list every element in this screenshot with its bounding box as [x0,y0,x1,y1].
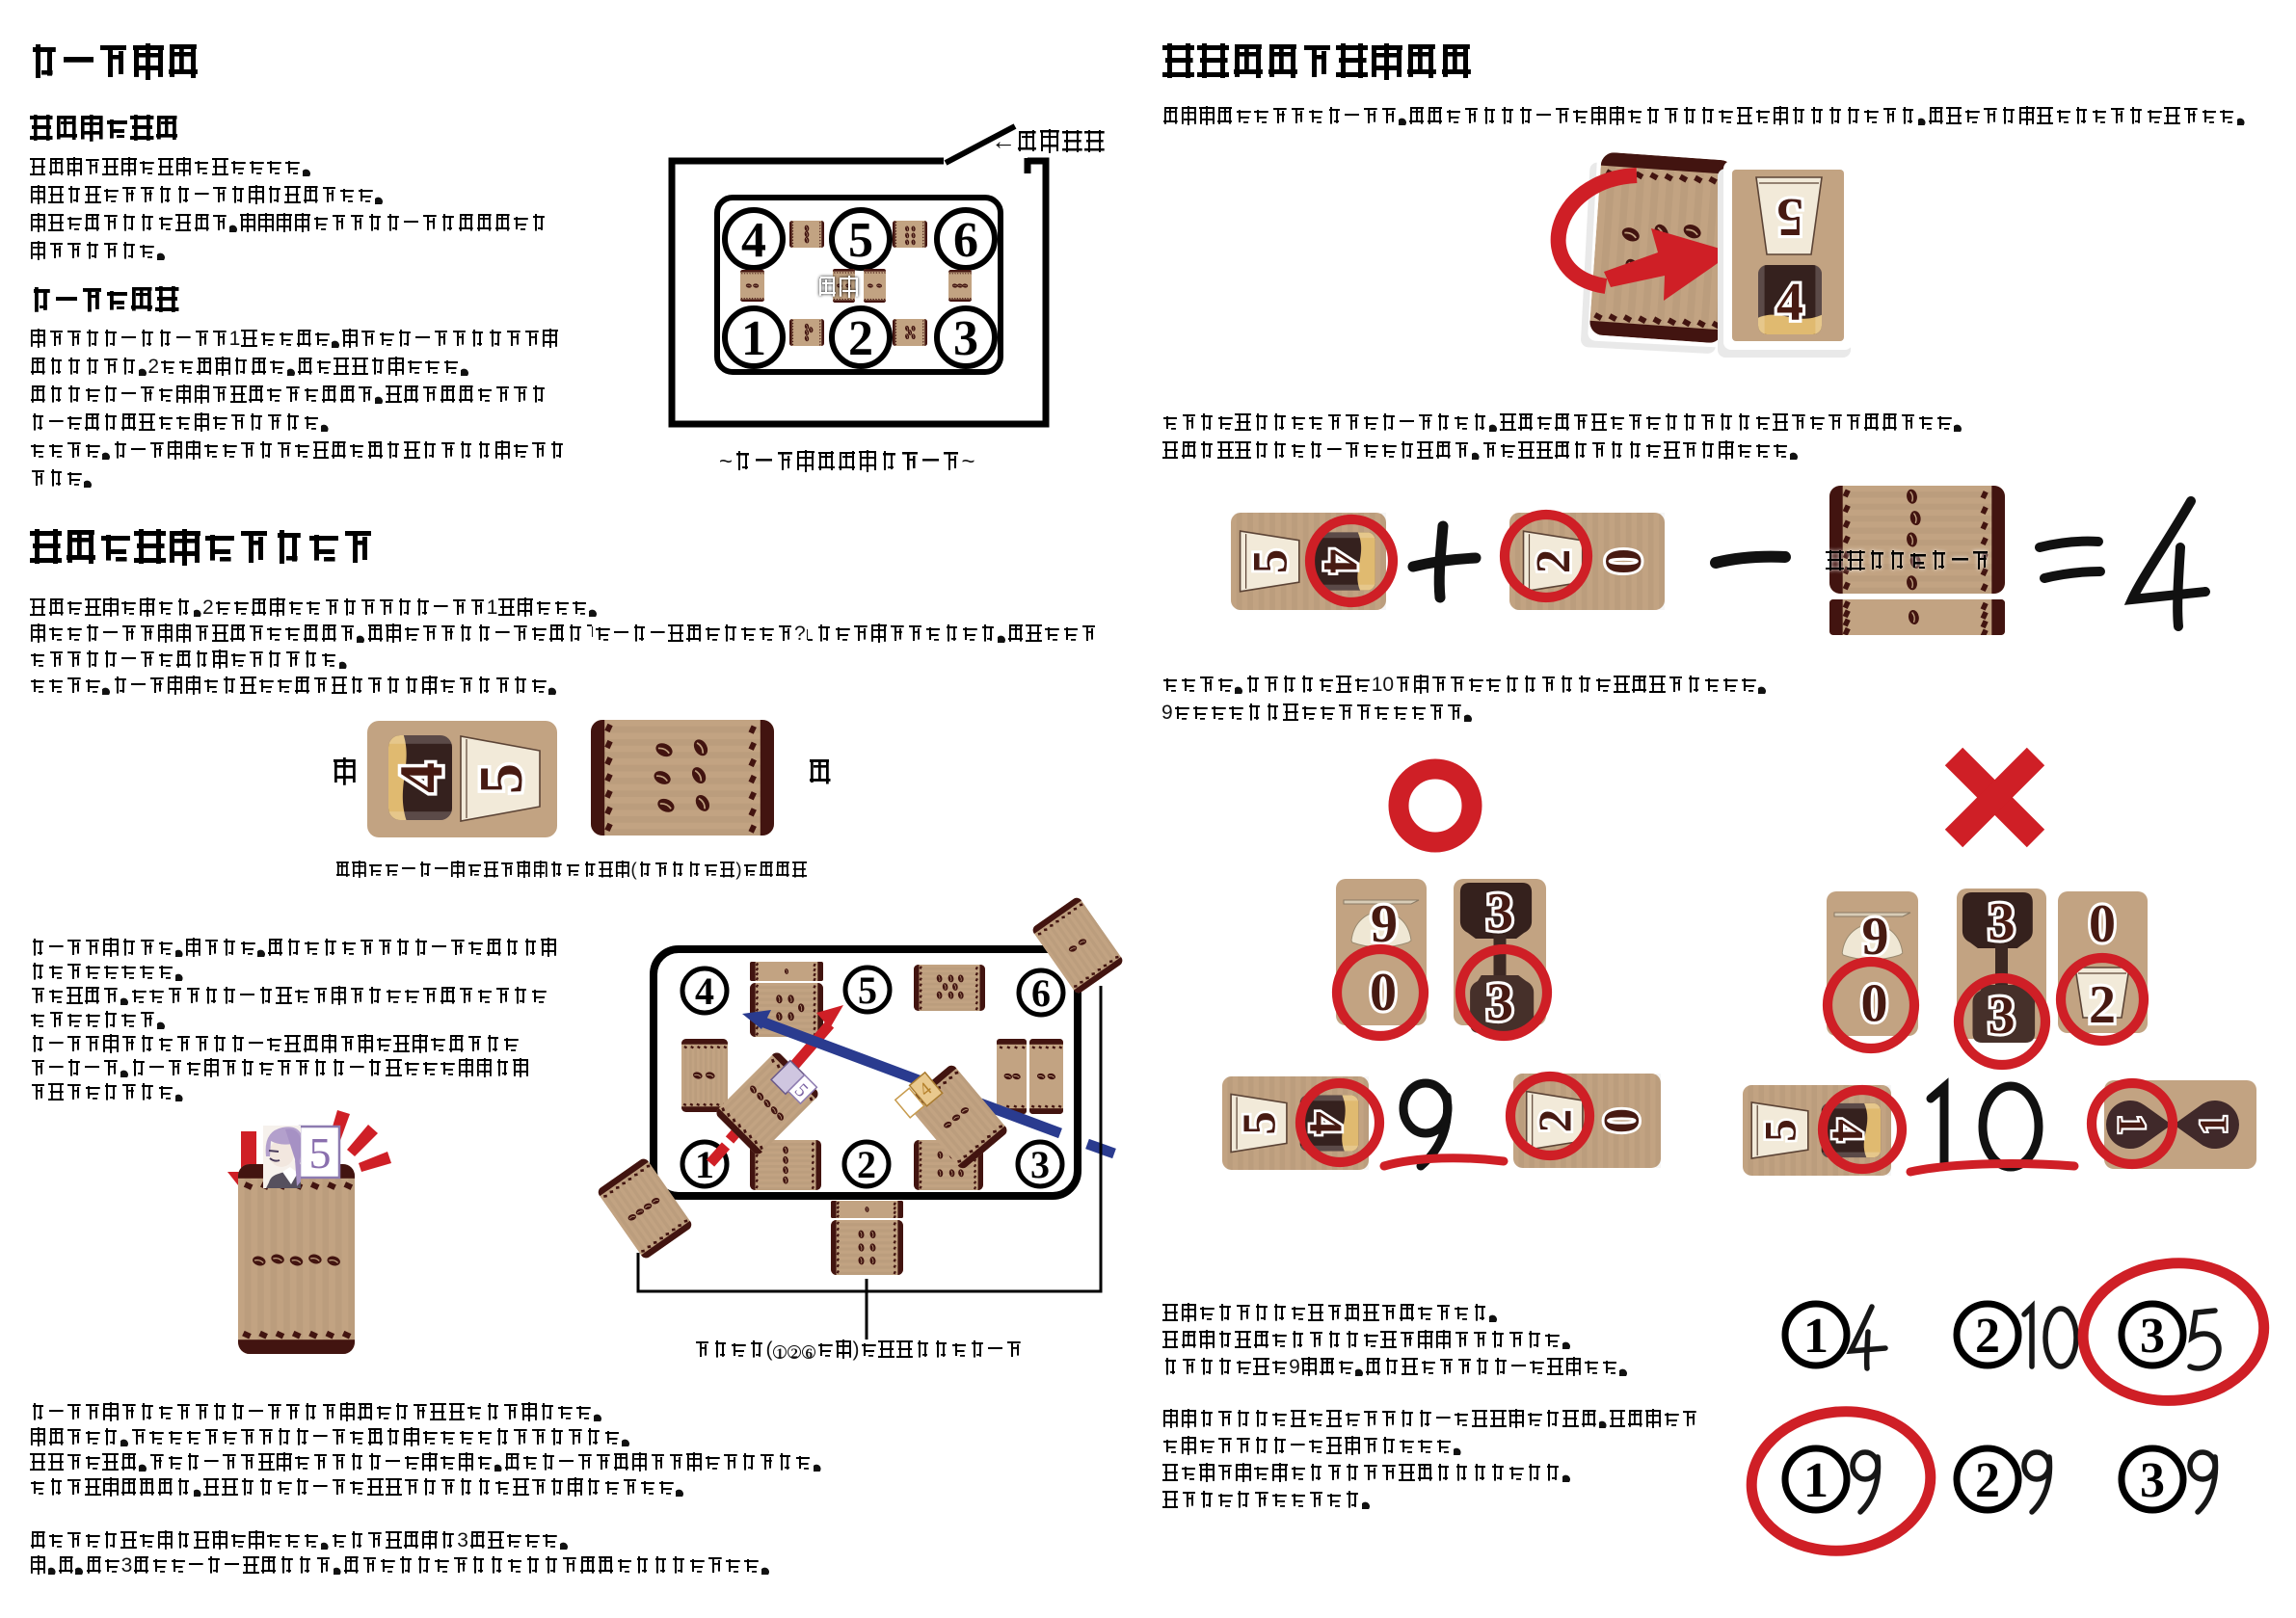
svg-text:3: 3 [953,311,978,366]
svg-text:3: 3 [1486,883,1513,942]
svg-text:1: 1 [695,1143,714,1186]
svg-text:0: 0 [1595,548,1654,574]
svg-text:3: 3 [1989,892,2016,952]
svg-text:5: 5 [858,968,877,1012]
svg-text:2: 2 [1526,549,1580,573]
svg-text:2: 2 [1975,1453,2000,1508]
svg-text:5: 5 [1235,1111,1286,1134]
svg-text:5: 5 [1776,187,1803,247]
svg-text:1: 1 [2110,1115,2153,1134]
svg-text:3: 3 [1030,1143,1050,1186]
svg-text:2: 2 [2089,975,2116,1035]
svg-text:3: 3 [2140,1453,2165,1508]
svg-text:5: 5 [848,213,873,268]
svg-text:3: 3 [1989,986,2016,1046]
svg-text:0: 0 [1370,963,1397,1022]
svg-text:5: 5 [467,763,535,794]
svg-text:6: 6 [953,213,978,268]
svg-text:6: 6 [1031,971,1051,1015]
svg-text:4: 4 [1776,273,1803,332]
svg-text:5: 5 [1756,1119,1806,1142]
svg-text:1: 1 [1803,1453,1829,1508]
svg-text:5: 5 [1242,549,1296,573]
svg-text:0: 0 [1593,1108,1649,1133]
svg-text:2: 2 [1975,1309,2000,1364]
svg-text:2: 2 [857,1143,876,1186]
svg-text:3: 3 [1486,973,1513,1033]
svg-text:4: 4 [1299,1111,1350,1134]
svg-text:5: 5 [309,1128,332,1178]
svg-text:1: 1 [1803,1309,1829,1364]
svg-text:0: 0 [2089,894,2116,954]
svg-text:4: 4 [387,762,455,793]
svg-text:4: 4 [1822,1119,1872,1142]
svg-text:1: 1 [2192,1115,2235,1134]
svg-text:2: 2 [1529,1109,1582,1133]
svg-text:1: 1 [741,311,766,366]
svg-text:4: 4 [741,213,766,268]
svg-text:2: 2 [848,311,873,366]
svg-text:4: 4 [695,969,714,1013]
svg-text:3: 3 [2140,1309,2165,1364]
svg-text:4: 4 [1314,549,1368,573]
svg-text:0: 0 [1861,974,1888,1034]
